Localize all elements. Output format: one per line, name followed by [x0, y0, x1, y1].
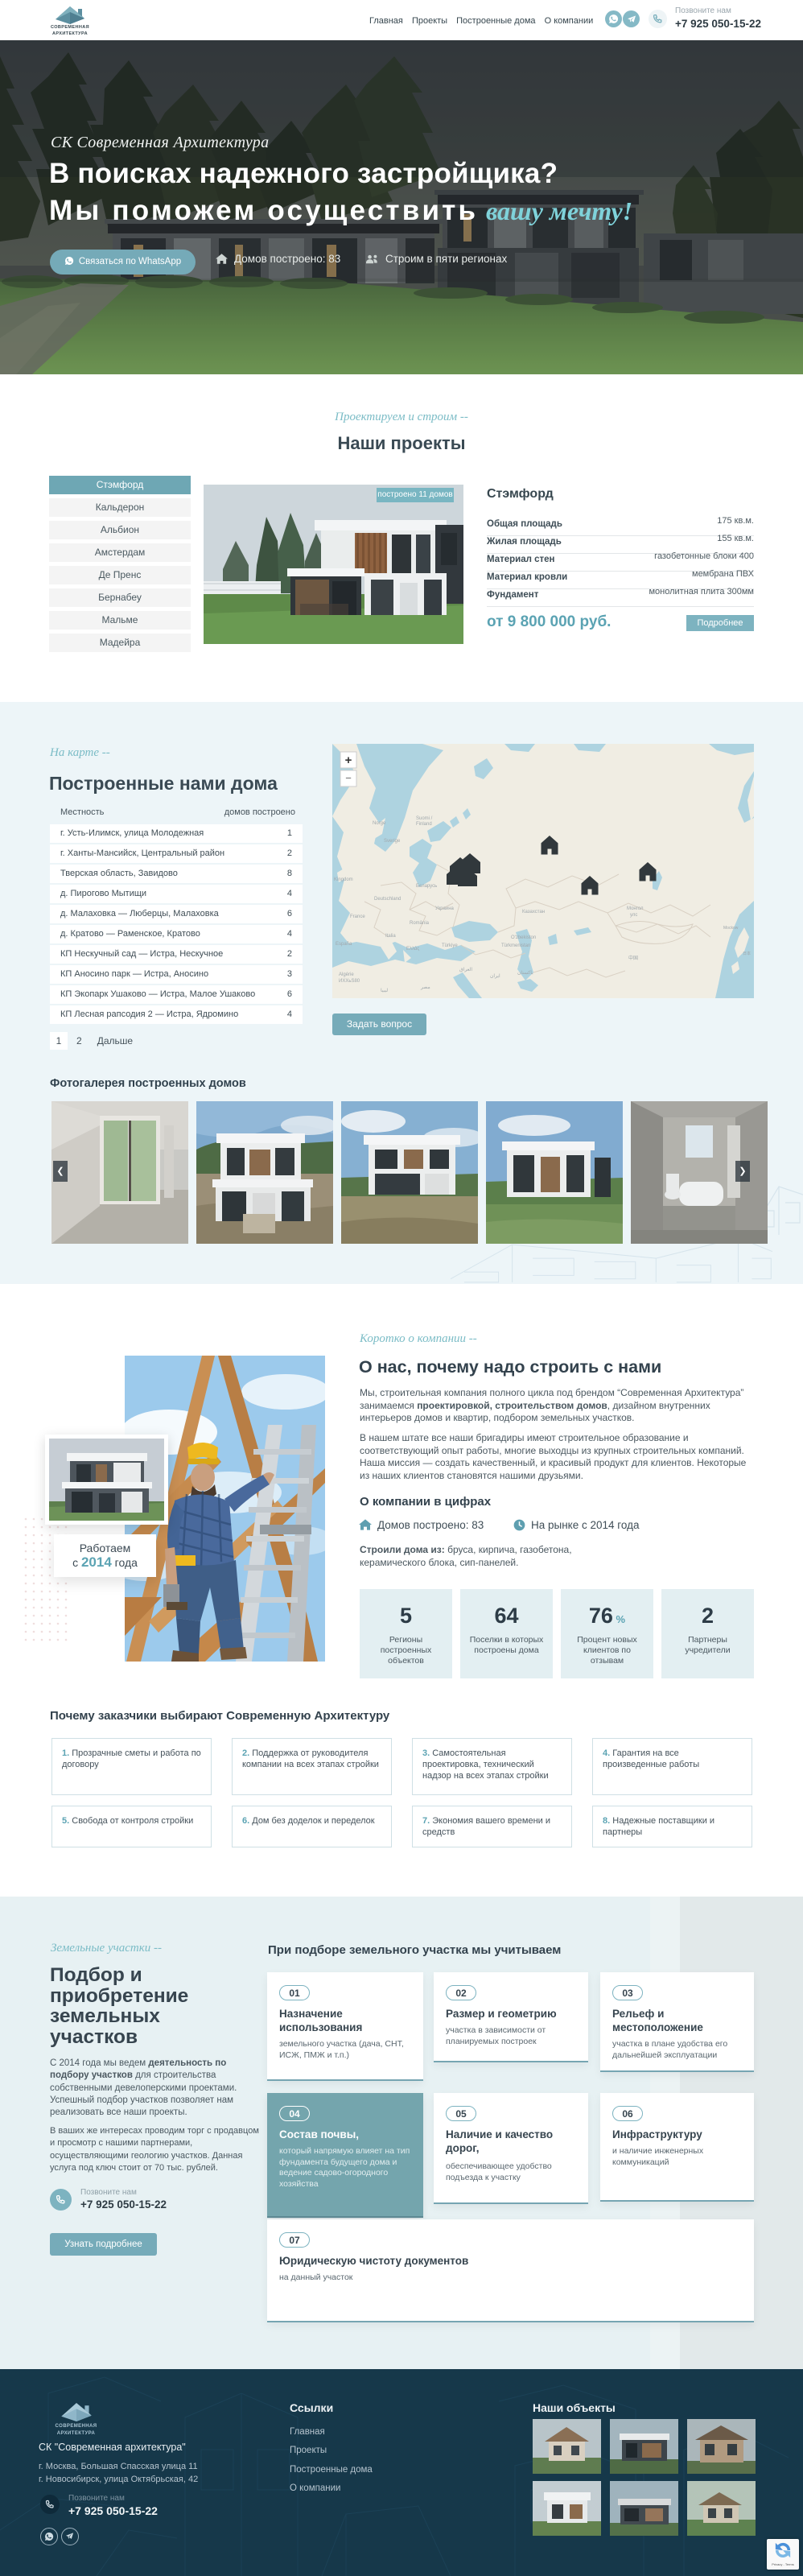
svg-text:Italia: Italia	[385, 934, 396, 939]
svg-text:Algérie: Algérie	[339, 972, 354, 977]
svg-text:O'zbekiston: O'zbekiston	[511, 935, 536, 940]
svg-text:Suomi /: Suomi /	[416, 816, 433, 821]
svg-text:Kingdom: Kingdom	[334, 877, 353, 882]
svg-text:Ελλάς: Ελλάς	[406, 946, 419, 952]
svg-text:España: España	[336, 942, 352, 947]
svg-text:Украина: Украина	[435, 906, 455, 911]
svg-text:باكستان: باكستان	[517, 970, 533, 976]
svg-text:Казахстан: Казахстан	[522, 910, 545, 914]
svg-text:Sverige: Sverige	[384, 839, 401, 844]
svg-text:Türkmenistan: Türkmenistan	[501, 943, 530, 948]
svg-text:ИХХьЅ80: ИХХьЅ80	[339, 979, 360, 984]
svg-text:улс: улс	[630, 913, 637, 918]
svg-text:Mосkow: Mосkow	[723, 926, 739, 931]
svg-text:العراق: العراق	[459, 967, 472, 972]
svg-text:Монгол: Монгол	[627, 906, 644, 911]
svg-text:France: France	[350, 914, 365, 919]
svg-text:−: −	[345, 772, 352, 784]
svg-text:日本: 日本	[743, 951, 751, 956]
svg-text:Беларусь: Беларусь	[416, 884, 437, 889]
svg-text:مصر: مصر	[420, 985, 430, 990]
svg-text:Norge: Norge	[373, 821, 386, 826]
svg-text:+: +	[345, 753, 352, 767]
svg-text:ليبيا: ليبيا	[381, 988, 388, 993]
svg-text:Finland: Finland	[416, 822, 432, 827]
svg-text:中国: 中国	[628, 955, 638, 961]
svg-text:Türkiye: Türkiye	[442, 943, 458, 948]
svg-text:ايران: ايران	[490, 973, 500, 979]
svg-text:Deutschland: Deutschland	[374, 897, 401, 902]
svg-text:România: România	[410, 921, 430, 926]
